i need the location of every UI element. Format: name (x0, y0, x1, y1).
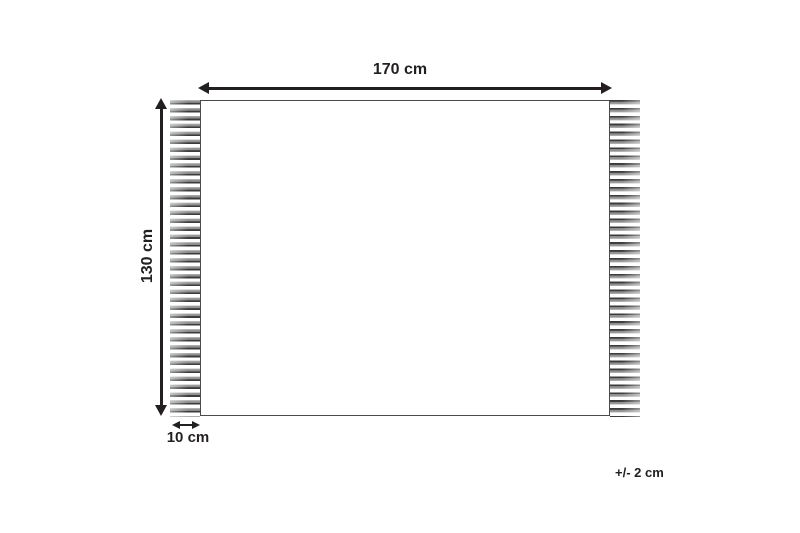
height-label: 130 cm (139, 206, 157, 306)
arrow-shaft (179, 424, 193, 427)
fringe-left (170, 100, 200, 417)
width-label: 170 cm (198, 61, 602, 79)
arrowhead-down-icon (155, 405, 167, 416)
arrow-shaft (160, 108, 163, 406)
arrowhead-right-icon (601, 82, 612, 94)
fringe-right (610, 100, 640, 417)
rug-dimension-diagram: 170 cm 130 cm 10 cm +/- 2 cm (0, 0, 800, 533)
arrowhead-right-icon (192, 421, 200, 429)
arrow-shaft (208, 87, 602, 90)
width-dimension-arrow (198, 82, 612, 94)
tolerance-label: +/- 2 cm (615, 465, 664, 480)
rug-outline (200, 100, 610, 416)
fringe-label: 10 cm (156, 429, 220, 446)
